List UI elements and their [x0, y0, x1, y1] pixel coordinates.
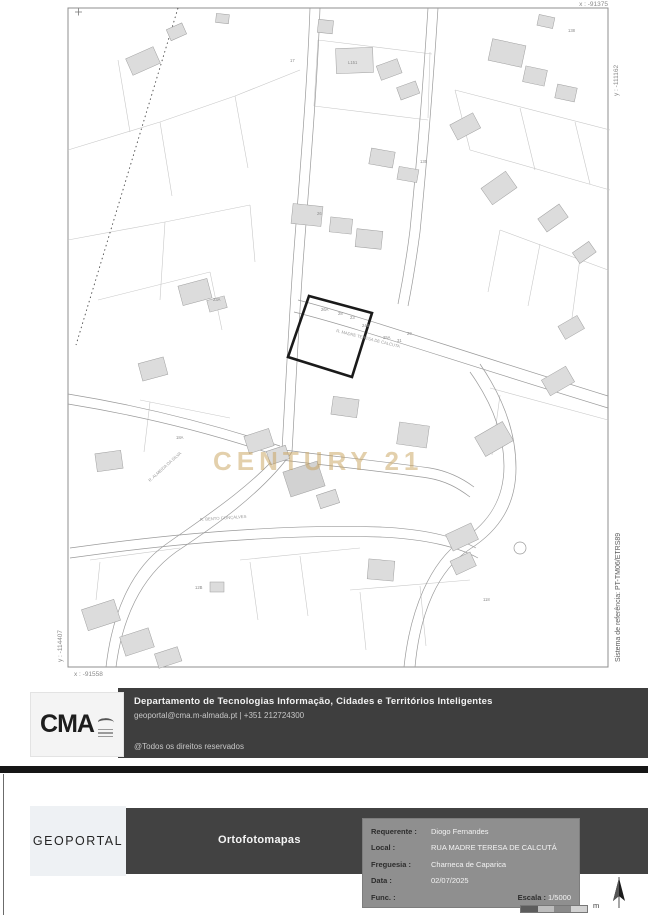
page-edge-line: [3, 774, 4, 915]
geoportal-logo-text: GEOPORTAL: [33, 834, 123, 848]
form-row-data: Data : 02/07/2025: [362, 873, 580, 890]
svg-text:26A: 26A: [321, 307, 329, 312]
form-row-local: Local : RUA MADRE TERESA DE CALCUTÁ: [362, 840, 580, 857]
form-row-func: Func. : Escala : 1/5000: [362, 889, 580, 906]
svg-text:118: 118: [483, 597, 490, 602]
cma-logo-mark-icon: [98, 718, 114, 738]
form-value: RUA MADRE TERESA DE CALCUTÁ: [431, 843, 571, 852]
cadastral-map: CENTURY 21 17 L151 138 26A 28 23 24B 25A…: [0, 0, 648, 690]
svg-text:24B: 24B: [362, 323, 370, 328]
cma-logo: CMA: [30, 692, 124, 757]
svg-text:L151: L151: [348, 60, 358, 65]
cma-logo-text: CMA: [40, 710, 94, 739]
svg-text:18A: 18A: [176, 435, 184, 440]
geoportal-logo: GEOPORTAL: [30, 806, 126, 876]
scalebar-unit-label: m: [593, 901, 599, 910]
form-label: Local :: [371, 843, 431, 852]
form-value: 02/07/2025: [431, 876, 571, 885]
coord-left-y: y : -114407: [57, 630, 64, 662]
reference-system-label: Sistema de referência: PT-TM06/ETRS89: [615, 533, 622, 662]
scale-label: Escala :: [518, 893, 546, 902]
document-title: Ortofotomapas: [218, 834, 301, 846]
svg-text:23A: 23A: [213, 297, 221, 302]
scale-value: 1/5000: [548, 893, 571, 902]
form-label: Freguesia :: [371, 860, 431, 869]
svg-text:28: 28: [338, 311, 343, 316]
coord-right-y: y : -111162: [613, 65, 620, 96]
svg-text:12B: 12B: [195, 585, 203, 590]
form-scale: Escala : 1/5000: [518, 893, 571, 902]
coord-top-right-x: x : -91375: [579, 1, 608, 8]
svg-text:26: 26: [317, 211, 322, 216]
svg-text:23: 23: [350, 315, 355, 320]
coord-bottom-left-x: x : -91558: [74, 671, 103, 678]
request-form: Requerente : Diogo Fernandes Local : RUA…: [362, 818, 580, 908]
department-contact: geoportal@cma.m-almada.pt | +351 2127243…: [134, 711, 304, 720]
svg-text:29: 29: [407, 331, 412, 336]
department-title: Departamento de Tecnologias Informação, …: [134, 696, 493, 707]
form-value: Charneca de Caparica: [431, 860, 571, 869]
ortofotomapa-document: CENTURY 21 17 L151 138 26A 28 23 24B 25A…: [0, 0, 648, 915]
north-arrow-icon: [606, 875, 632, 911]
svg-text:17: 17: [290, 58, 295, 63]
map-frame: [68, 8, 608, 667]
form-row-requerente: Requerente : Diogo Fernandes: [362, 823, 580, 840]
svg-text:138: 138: [568, 28, 576, 33]
form-label: Data :: [371, 876, 431, 885]
form-label: Func. :: [371, 893, 431, 902]
svg-text:31: 31: [397, 338, 402, 343]
divider-bar: [0, 766, 648, 773]
watermark-text: CENTURY 21: [213, 446, 423, 476]
form-value: Diogo Fernandes: [431, 827, 571, 836]
department-rights: @Todos os direitos reservados: [134, 742, 244, 751]
scalebar: [520, 905, 588, 913]
form-row-freguesia: Freguesia : Charneca de Caparica: [362, 856, 580, 873]
form-label: Requerente :: [371, 827, 431, 836]
department-banner: Departamento de Tecnologias Informação, …: [118, 688, 648, 758]
svg-text:135: 135: [420, 159, 428, 164]
